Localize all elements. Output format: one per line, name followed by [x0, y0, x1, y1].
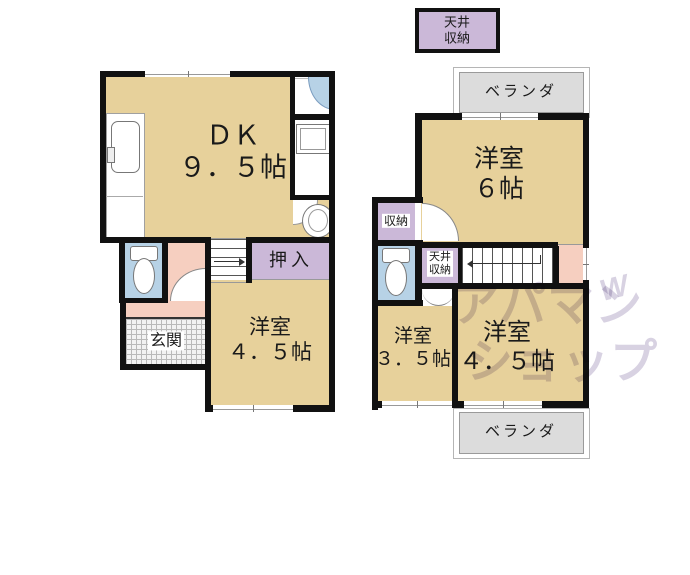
wall [293, 405, 335, 412]
wall [290, 195, 335, 200]
floor-plan: 天井収納 ベランダ ベランダ ＤＫ９ [0, 0, 690, 575]
room-dk-label: ＤＫ９．５帖 [179, 120, 287, 185]
closet-2f-label: 収納 [382, 214, 410, 228]
landing [558, 245, 583, 283]
entrance-label: 玄関 [148, 331, 184, 350]
opening-line [211, 238, 246, 239]
stairs-arrow [473, 263, 540, 264]
kitchen-sink [111, 121, 140, 173]
wall [415, 113, 422, 203]
room-45-1f-label: 洋室４．５帖 [228, 315, 312, 365]
attic-storage-label: 天井収納 [444, 14, 470, 45]
room-45-2f-label: 洋室４．５帖 [459, 319, 555, 377]
closet-oshiire-label: 押入 [269, 250, 313, 272]
window [145, 71, 230, 77]
stairs-arrow-head [467, 260, 473, 268]
wall [205, 405, 213, 412]
washstand-bowl [308, 209, 328, 232]
wall [452, 401, 464, 408]
wall [372, 300, 423, 306]
wall [415, 242, 558, 248]
veranda-top-label: ベランダ [485, 83, 557, 101]
faucet [107, 147, 115, 163]
toilet-bowl [385, 260, 407, 296]
wall [205, 237, 211, 405]
wall [452, 289, 458, 401]
room-6-label: 洋室６帖 [474, 144, 524, 204]
entrance-boundary [126, 317, 205, 319]
stairs [462, 246, 553, 283]
stairs-arrow [214, 261, 239, 262]
wall [290, 71, 295, 200]
wall [120, 364, 211, 370]
wall [290, 114, 335, 120]
counter-divider [106, 196, 143, 197]
window [462, 113, 538, 120]
window [464, 401, 542, 408]
wall [246, 237, 252, 283]
wall [120, 303, 126, 370]
veranda-bottom-label: ベランダ [485, 423, 557, 441]
toilet-bowl [133, 258, 155, 294]
stairs-arrow-tail [540, 255, 541, 264]
room-35-label: 洋室３．５帖 [375, 326, 451, 372]
wall [119, 298, 168, 303]
washbasin [296, 124, 330, 154]
window [213, 405, 293, 412]
wall [553, 246, 559, 283]
wall [458, 246, 462, 283]
wall [100, 237, 211, 243]
wall [372, 197, 423, 203]
window [382, 401, 452, 408]
wall [162, 237, 168, 303]
window [583, 248, 589, 280]
wall [100, 71, 106, 243]
watermark-w-mark: W [596, 269, 632, 309]
wall [542, 401, 589, 408]
wall [119, 237, 125, 303]
wall [415, 283, 589, 289]
wall [372, 401, 382, 408]
door-arc [422, 289, 455, 306]
ceiling-storage-2f-label: 天井収納 [427, 251, 453, 277]
wall [415, 240, 422, 306]
wall [246, 237, 335, 243]
stairs-arrow-head [239, 258, 245, 266]
opening-line [211, 282, 246, 283]
opening-line [558, 244, 583, 245]
